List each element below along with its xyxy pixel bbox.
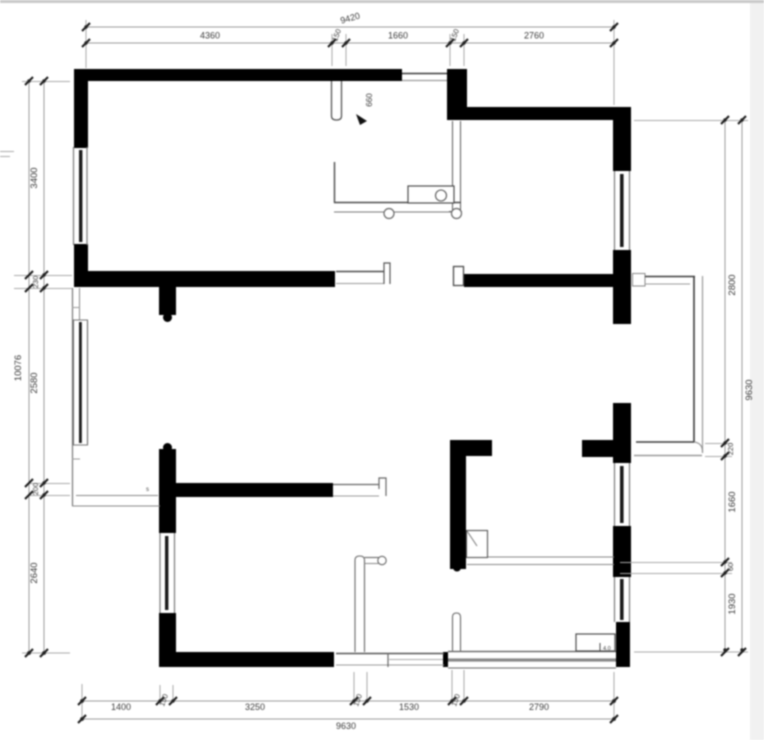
svg-text:4360: 4360 bbox=[200, 31, 220, 41]
svg-text:2760: 2760 bbox=[524, 31, 544, 41]
svg-text:200: 200 bbox=[31, 483, 40, 496]
svg-text:4.0: 4.0 bbox=[603, 646, 611, 652]
svg-text:1930: 1930 bbox=[727, 593, 738, 614]
svg-text:2640: 2640 bbox=[29, 562, 40, 583]
svg-text:220: 220 bbox=[726, 443, 735, 456]
svg-text:s: s bbox=[146, 487, 149, 493]
svg-text:1660: 1660 bbox=[388, 31, 408, 41]
svg-text:9630: 9630 bbox=[744, 379, 755, 400]
svg-text:3400: 3400 bbox=[29, 167, 40, 188]
svg-text:660: 660 bbox=[365, 93, 374, 107]
svg-text:3250: 3250 bbox=[245, 702, 265, 712]
svg-text:60: 60 bbox=[726, 563, 735, 571]
svg-text:230: 230 bbox=[31, 276, 40, 289]
svg-text:2580: 2580 bbox=[29, 372, 40, 393]
svg-text:1660: 1660 bbox=[727, 491, 738, 512]
svg-text:1530: 1530 bbox=[399, 702, 419, 712]
svg-text:2790: 2790 bbox=[529, 702, 549, 712]
svg-text:9630: 9630 bbox=[336, 721, 356, 731]
svg-text:10076: 10076 bbox=[13, 355, 24, 381]
svg-text:2800: 2800 bbox=[727, 274, 738, 295]
svg-text:1400: 1400 bbox=[111, 702, 131, 712]
